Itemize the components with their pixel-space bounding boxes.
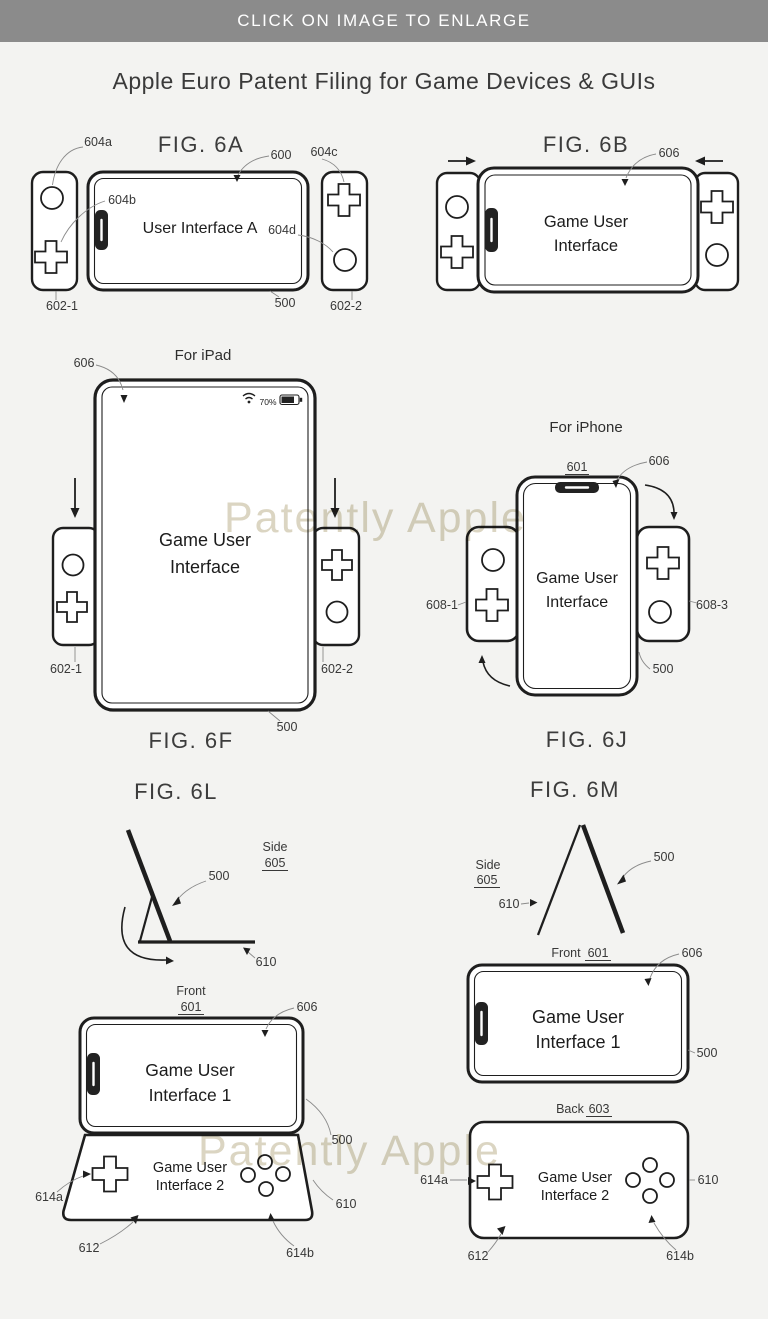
screen2-line2: Interface 2 xyxy=(156,1178,225,1194)
fig-6a: FIG. 6A User Interface A 604a 600 604c xyxy=(20,130,400,320)
fig6j-ref-608-1: 608-1 xyxy=(426,598,466,612)
fig6m-ref-500: 500 xyxy=(688,1046,717,1060)
fig6l-ref-500: 500 xyxy=(306,1099,352,1147)
svg-text:500: 500 xyxy=(209,869,230,883)
svg-text:500: 500 xyxy=(653,662,674,676)
fig6f-ipad: 70% Game User Interface xyxy=(95,380,315,710)
fig6m-ref-610-side: 610 xyxy=(499,897,538,911)
screen1-line2: Interface 1 xyxy=(535,1032,620,1052)
fig6m-ref-610: 610 xyxy=(689,1173,718,1187)
svg-text:606: 606 xyxy=(682,946,703,960)
screen-text-line1: Game User xyxy=(536,570,618,587)
fig6f-ref-602-2: 602-2 xyxy=(321,647,353,676)
controller-body xyxy=(467,527,519,641)
attach-arrow-left xyxy=(695,157,723,166)
stand-side-line xyxy=(538,825,580,935)
fig6f-subtitle: For iPad xyxy=(175,347,232,364)
svg-text:602-1: 602-1 xyxy=(50,662,82,676)
controller-body xyxy=(437,173,480,290)
attach-arrow-right xyxy=(448,157,476,166)
fig6b-title: FIG. 6B xyxy=(543,132,629,157)
fig6j-left-controller xyxy=(467,527,519,641)
svg-text:606: 606 xyxy=(74,356,95,370)
fig6j-right-controller xyxy=(637,527,689,641)
fig-6m: FIG. 6M Side 605 610 500 Front 601 Game … xyxy=(420,780,768,1270)
battery-percent: 70% xyxy=(259,397,276,407)
svg-text:605: 605 xyxy=(265,856,286,870)
svg-text:610: 610 xyxy=(499,897,520,911)
dock-arrow-right xyxy=(331,478,340,518)
fig6l-ref-610: 610 xyxy=(313,1180,356,1211)
fig6l-phone: Game User Interface 1 xyxy=(80,1018,303,1133)
side-label: Side xyxy=(262,840,287,854)
fig6a-ref-602-2: 602-2 xyxy=(330,291,362,313)
enlarge-banner-text: CLICK ON IMAGE TO ENLARGE xyxy=(237,11,531,30)
fig6b-right-controller xyxy=(695,173,738,290)
svg-text:610: 610 xyxy=(256,955,277,969)
svg-text:606: 606 xyxy=(649,454,670,468)
fig6a-ref-500: 500 xyxy=(270,291,295,310)
front-label: Front xyxy=(176,984,206,998)
fig6j-ref-608-3: 608-3 xyxy=(689,598,728,612)
svg-text:500: 500 xyxy=(275,296,296,310)
fig6f-right-controller xyxy=(313,528,359,645)
page-title: Apple Euro Patent Filing for Game Device… xyxy=(0,68,768,95)
rotate-arrow-bottom-left xyxy=(479,655,511,686)
fig6f-ref-500: 500 xyxy=(268,711,297,734)
fig6m-side-view xyxy=(538,825,623,935)
fig-6j: For iPhone 601 Game User Interface 606 xyxy=(420,400,768,760)
screen-text-line2: Interface xyxy=(546,594,608,611)
svg-text:600: 600 xyxy=(271,148,292,162)
fig6l-ref-610-side: 610 xyxy=(243,948,276,970)
fig6a-right-controller xyxy=(322,172,367,290)
svg-text:602-1: 602-1 xyxy=(46,299,78,313)
back-label: Back xyxy=(556,1102,585,1116)
fig6j-ref-601: 601 xyxy=(565,460,589,475)
screen-text-line1: Game User xyxy=(159,530,251,550)
svg-text:612: 612 xyxy=(468,1249,489,1263)
svg-text:500: 500 xyxy=(277,720,298,734)
controller-body xyxy=(313,528,359,645)
screen-text-line1: Game User xyxy=(544,213,629,231)
screen1-line1: Game User xyxy=(145,1060,235,1080)
fig6b-left-controller xyxy=(437,173,480,290)
fig6b-phone: Game User Interface xyxy=(478,168,698,292)
device-side-line xyxy=(128,830,170,941)
controller-body xyxy=(322,172,367,290)
device-side-line xyxy=(583,825,623,933)
front-label: Front xyxy=(551,946,581,960)
fig6m-ref-500-side: 500 xyxy=(617,850,674,885)
svg-text:612: 612 xyxy=(79,1241,100,1255)
fig6f-title: FIG. 6F xyxy=(148,728,233,753)
fig6j-subtitle: For iPhone xyxy=(549,419,622,436)
svg-text:601: 601 xyxy=(181,1000,202,1014)
fig-6l: FIG. 6L Side 605 500 610 Front 601 Game … xyxy=(40,780,400,1270)
svg-text:614a: 614a xyxy=(35,1190,63,1204)
svg-text:608-1: 608-1 xyxy=(426,598,458,612)
svg-text:604c: 604c xyxy=(310,145,337,159)
controller-body xyxy=(53,528,99,645)
svg-text:603: 603 xyxy=(589,1102,610,1116)
patent-figure-sheet[interactable]: CLICK ON IMAGE TO ENLARGE Apple Euro Pat… xyxy=(0,0,768,1319)
fig6m-phone: Game User Interface 1 xyxy=(468,965,688,1082)
fig6m-ref-605: 605 xyxy=(474,873,500,888)
svg-text:614b: 614b xyxy=(286,1246,314,1260)
fig-6b: FIG. 6B Game User Interface 606 xyxy=(410,130,768,320)
svg-text:608-3: 608-3 xyxy=(696,598,728,612)
fig6l-title: FIG. 6L xyxy=(134,779,218,804)
svg-text:500: 500 xyxy=(697,1046,718,1060)
fig6a-ref-602-1: 602-1 xyxy=(46,291,78,313)
svg-text:614a: 614a xyxy=(420,1173,448,1187)
screen2-line2: Interface 2 xyxy=(541,1188,610,1204)
screen-text-line2: Interface xyxy=(170,557,240,577)
svg-text:602-2: 602-2 xyxy=(330,299,362,313)
svg-text:601: 601 xyxy=(567,460,588,474)
svg-text:500: 500 xyxy=(654,850,675,864)
screen2-line1: Game User xyxy=(153,1160,227,1176)
screen-text: User Interface A xyxy=(143,220,258,237)
fig6a-title: FIG. 6A xyxy=(158,132,244,157)
screen-text-line2: Interface xyxy=(554,237,618,255)
fig6j-phone: Game User Interface xyxy=(517,477,637,695)
fig6f-left-controller xyxy=(53,528,99,645)
side-label: Side xyxy=(475,858,500,872)
fig6j-ref-500: 500 xyxy=(639,652,673,676)
fig6l-keyboard-base: Game User Interface 2 xyxy=(63,1135,312,1220)
svg-text:500: 500 xyxy=(332,1133,353,1147)
svg-text:614b: 614b xyxy=(666,1249,694,1263)
fig6l-side-view xyxy=(122,830,255,965)
fig6m-ref-603: 603 xyxy=(586,1102,612,1117)
svg-text:604b: 604b xyxy=(108,193,136,207)
screen2-line1: Game User xyxy=(538,1170,612,1186)
svg-text:602-2: 602-2 xyxy=(321,662,353,676)
fig6m-ref-601: 601 xyxy=(585,946,611,961)
fig6m-ref-614a: 614a xyxy=(420,1173,476,1187)
svg-text:606: 606 xyxy=(659,146,680,160)
fig6m-title: FIG. 6M xyxy=(530,777,620,802)
svg-text:601: 601 xyxy=(588,946,609,960)
svg-text:604a: 604a xyxy=(84,135,112,149)
svg-text:604d: 604d xyxy=(268,223,296,237)
controller-body xyxy=(637,527,689,641)
fig6l-ref-605: 605 xyxy=(262,856,288,871)
fig6j-title: FIG. 6J xyxy=(546,727,629,752)
svg-text:610: 610 xyxy=(698,1173,719,1187)
fig-6f: For iPad 70% xyxy=(30,340,410,760)
fig6f-ref-602-1: 602-1 xyxy=(50,647,82,676)
fig6a-left-controller xyxy=(32,172,77,290)
fig6m-back-panel: Game User Interface 2 xyxy=(470,1122,688,1238)
svg-text:610: 610 xyxy=(336,1197,357,1211)
svg-text:606: 606 xyxy=(297,1000,318,1014)
rotate-arrow-top-right xyxy=(645,485,678,520)
dock-arrow-left xyxy=(71,478,80,518)
enlarge-banner: CLICK ON IMAGE TO ENLARGE xyxy=(0,0,768,42)
kickstand-line xyxy=(140,897,152,941)
screen1-line2: Interface 1 xyxy=(149,1085,232,1105)
svg-text:605: 605 xyxy=(477,873,498,887)
screen1-line1: Game User xyxy=(532,1007,624,1027)
fig6l-ref-601: 601 xyxy=(178,1000,204,1015)
fig6l-ref-500-side: 500 xyxy=(172,869,229,906)
